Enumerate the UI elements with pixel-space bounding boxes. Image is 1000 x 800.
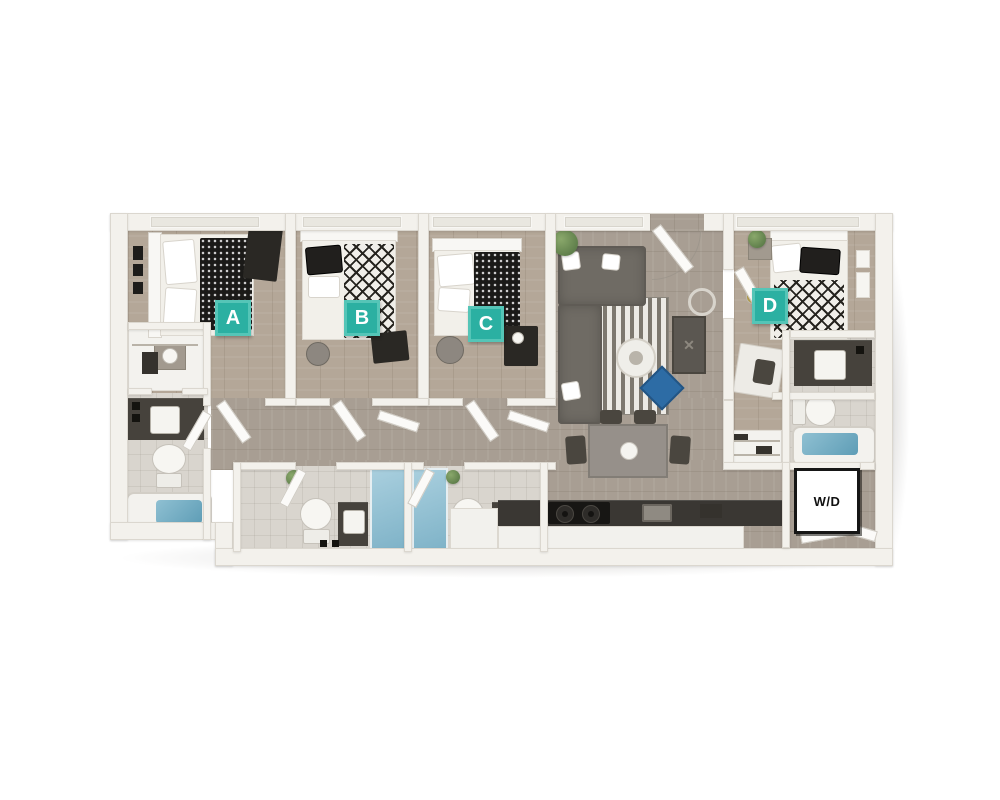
bath-block-top-wall bbox=[233, 462, 296, 470]
sofa-pillow bbox=[561, 381, 582, 402]
stove-burner bbox=[556, 505, 574, 523]
bedroom-c-label: C bbox=[468, 306, 504, 342]
bath-block-left-wall bbox=[233, 462, 241, 552]
coffee-table bbox=[616, 338, 656, 378]
closet-a-top-wall bbox=[128, 322, 208, 330]
sofa-pillow bbox=[601, 253, 621, 271]
closet-d-shelf bbox=[728, 440, 780, 442]
dining-chair bbox=[669, 435, 691, 464]
bathroom-a-toilet bbox=[152, 444, 186, 488]
closet-a-item bbox=[142, 352, 158, 374]
wall-art-a bbox=[133, 246, 143, 260]
dining-chair bbox=[634, 410, 656, 424]
closet-bath-a-wall2 bbox=[182, 388, 208, 395]
laundry-right-stub bbox=[860, 462, 875, 470]
outer-wall-left bbox=[110, 213, 128, 540]
bedroom-d-label: D bbox=[752, 288, 788, 324]
bed-b-pillow bbox=[308, 276, 340, 298]
desk-a bbox=[243, 222, 284, 282]
wall-c-living bbox=[545, 213, 556, 406]
wall-panel-d bbox=[856, 272, 870, 298]
bed-d-pillow bbox=[799, 247, 841, 276]
outer-wall-bottom bbox=[215, 548, 893, 566]
laundry-left-wall bbox=[782, 462, 790, 548]
wall-b-c bbox=[418, 213, 429, 406]
closet-d-item bbox=[756, 446, 772, 454]
bathroom-1-shower bbox=[370, 468, 406, 550]
bath-item bbox=[320, 540, 327, 547]
wall-panel-d bbox=[856, 250, 870, 268]
closet-d-shelf bbox=[728, 454, 780, 456]
washer-dryer-label: W/D bbox=[794, 468, 860, 534]
window bbox=[432, 216, 532, 228]
bathroom-d-sink bbox=[814, 350, 846, 380]
kitchen-cabinet-front bbox=[498, 526, 744, 550]
bed-a-pillow bbox=[162, 239, 198, 286]
dining-plate bbox=[620, 442, 638, 460]
bedroom-a-bottom-wall bbox=[265, 398, 296, 406]
stove-burner bbox=[582, 505, 600, 523]
plant-d bbox=[748, 230, 766, 248]
bed-c-pillow bbox=[437, 287, 471, 313]
floorplan-image: ✕ bbox=[0, 0, 1000, 800]
wall-a-b bbox=[285, 213, 296, 406]
bathroom-d-left-wall bbox=[782, 330, 790, 464]
apartment-floorplan: ✕ bbox=[0, 0, 1000, 800]
chair-c bbox=[436, 336, 464, 364]
bath-separator-wall bbox=[404, 462, 412, 552]
bedroom-b-bottom-wall bbox=[296, 398, 330, 406]
wall-art-a bbox=[133, 264, 143, 276]
bed-b-pillow bbox=[305, 244, 343, 275]
media-console: ✕ bbox=[672, 316, 706, 374]
bathroom-d-top-wall bbox=[790, 330, 875, 338]
vanity-item bbox=[132, 402, 140, 410]
bathroom-d-tub bbox=[792, 426, 876, 466]
wall-art-a bbox=[133, 282, 143, 294]
wall-living-d-lower bbox=[723, 318, 734, 400]
bedroom-c-bottom-wall2 bbox=[507, 398, 556, 406]
kitchen-sink bbox=[642, 504, 672, 522]
bath-item bbox=[332, 540, 339, 547]
vanity-item bbox=[132, 414, 140, 422]
stool-b bbox=[306, 342, 330, 366]
dining-chair bbox=[600, 410, 622, 424]
desk-item-c bbox=[512, 332, 524, 344]
window bbox=[150, 216, 260, 228]
bath-block-right-wall bbox=[540, 462, 548, 552]
bathroom-1-sink bbox=[343, 510, 365, 534]
outer-wall-right bbox=[875, 213, 893, 566]
desk-chair-d bbox=[752, 359, 776, 386]
wall-living-d-upper bbox=[723, 213, 734, 270]
bedroom-b-label: B bbox=[344, 300, 380, 336]
kitchen-item bbox=[700, 504, 722, 518]
closet-bath-a-wall bbox=[128, 388, 152, 395]
closet-a-shelf bbox=[132, 344, 198, 346]
lamp-a bbox=[162, 348, 178, 364]
bedroom-c-bottom-wall bbox=[429, 398, 463, 406]
bathroom-a-right-wall bbox=[203, 448, 211, 540]
window bbox=[564, 216, 644, 228]
bathroom-1-toilet bbox=[298, 498, 334, 546]
closet-d-item bbox=[734, 434, 748, 440]
vanity-item bbox=[856, 346, 864, 354]
bath2-plant bbox=[446, 470, 460, 484]
sofa-left bbox=[558, 304, 602, 424]
bed-c-pillow bbox=[437, 252, 476, 287]
kitchen-counter-return bbox=[450, 508, 498, 552]
bedroom-b-bottom-wall2 bbox=[372, 398, 429, 406]
window bbox=[302, 216, 402, 228]
console-x-mark: ✕ bbox=[683, 338, 695, 352]
wall-mirror bbox=[688, 288, 716, 316]
d-hall-wall bbox=[723, 400, 734, 464]
bathroom-a-sink bbox=[150, 406, 180, 434]
window bbox=[736, 216, 860, 228]
dining-chair bbox=[565, 435, 587, 464]
bedroom-a-label: A bbox=[215, 300, 251, 336]
